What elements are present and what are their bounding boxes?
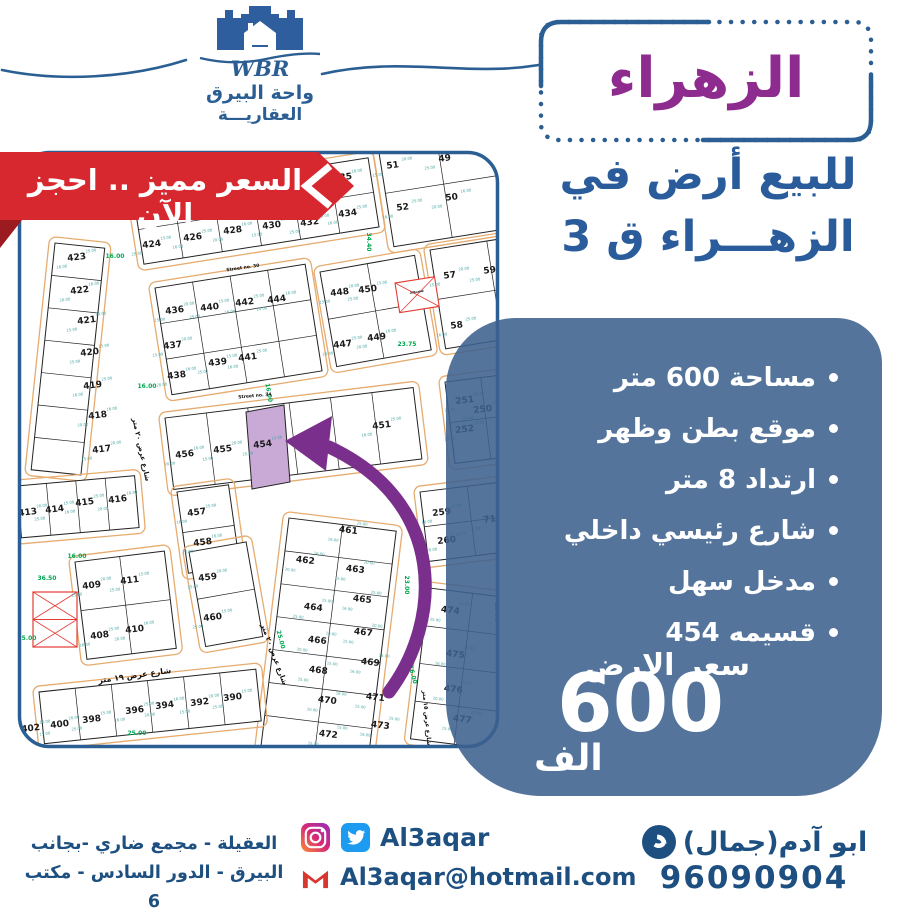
info-panel: مساحة 600 مترموقع بطن وظهرارتداد 8 مترشا… — [446, 318, 882, 796]
feature-item: ارتداد 8 متر — [446, 454, 840, 505]
svg-text:52: 52 — [396, 202, 410, 213]
twitter-icon[interactable] — [340, 822, 371, 853]
svg-text:58: 58 — [450, 320, 464, 331]
feature-item: شارع رئيسي داخلي — [446, 505, 840, 556]
svg-text:34.40: 34.40 — [365, 233, 372, 252]
phone-icon — [641, 824, 677, 860]
feature-item: مدخل سهل — [446, 556, 840, 607]
instagram-icon[interactable] — [300, 822, 331, 853]
svg-text:16.00: 16.00 — [68, 553, 87, 560]
brand-name-line2: العقاريـــة — [185, 105, 335, 125]
wbr-logo: WBR — [198, 2, 322, 82]
price-value: 600 — [557, 664, 724, 744]
svg-text:57: 57 — [443, 270, 457, 281]
feature-item: موقع بطن وظهر — [446, 403, 840, 454]
gmail-icon[interactable] — [300, 864, 331, 891]
page-title: الزهراء — [537, 18, 875, 144]
subtitle-line1: للبيع أرض في — [540, 150, 876, 200]
address-line1: العقيلة - مجمع ضاري -بجانب — [18, 830, 290, 859]
svg-text:51: 51 — [386, 160, 400, 171]
title-box: الزهراء — [537, 18, 875, 144]
svg-text:50: 50 — [445, 192, 459, 203]
brand-name-line1: واحة البيرق — [185, 82, 335, 104]
contact-name: ابو آدم(جمال) — [683, 827, 867, 858]
svg-text:23.00: 23.00 — [403, 576, 410, 595]
svg-text:59: 59 — [483, 265, 497, 276]
social-handle[interactable]: Al3aqar — [380, 823, 489, 852]
svg-text:20.00: 20.00 — [17, 734, 22, 740]
contact-block: ابو آدم(جمال) 96090904 — [628, 824, 880, 896]
svg-text:36.50: 36.50 — [38, 575, 57, 582]
svg-text:16.00: 16.00 — [106, 253, 125, 260]
feature-item: مساحة 600 متر — [446, 352, 840, 403]
phone-number: 96090904 — [628, 860, 880, 896]
social-block: Al3aqar Al3aqar@hotmail.com — [300, 820, 636, 894]
svg-text:49: 49 — [438, 153, 452, 164]
subtitle-line2: الزهـــراء ق 3 — [540, 212, 876, 262]
svg-text:16.00: 16.00 — [138, 383, 157, 390]
address-line2: البيرق - الدور السادس - مكتب 6 — [18, 859, 290, 917]
wbr-text: WBR — [231, 56, 290, 81]
office-address: العقيلة - مجمع ضاري -بجانب البيرق - الدو… — [18, 830, 290, 917]
price-unit: الف — [534, 738, 603, 779]
svg-text:23.75: 23.75 — [398, 341, 417, 348]
promo-text: السعر مميز .. احجز الآن — [12, 163, 318, 231]
feature-list: مساحة 600 مترموقع بطن وظهرارتداد 8 مترشا… — [446, 352, 840, 658]
email-link[interactable]: Al3aqar@hotmail.com — [340, 863, 636, 891]
svg-text:25.00: 25.00 — [128, 730, 147, 737]
